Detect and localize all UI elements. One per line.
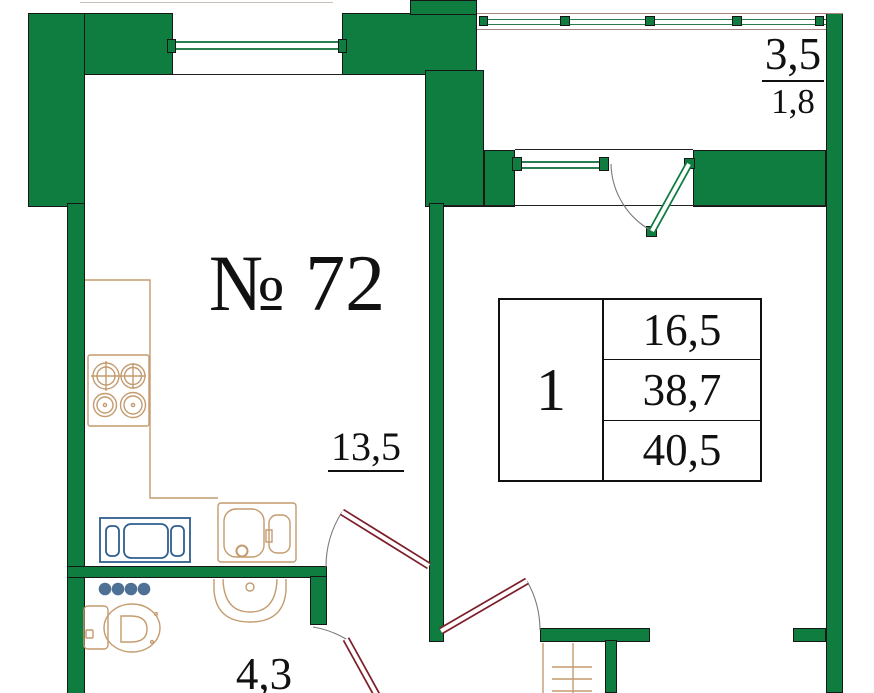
area-balcony: 3,5 bbox=[745, 31, 841, 78]
area-balcony-counted: 1,8 bbox=[745, 84, 841, 121]
floor-plan: № 72 13,5 3,5 1,8 4,3 1 16,5 38,7 40,5 bbox=[0, 0, 874, 693]
kitchen-door bbox=[326, 512, 429, 567]
area-kitchen-living: 13,5 bbox=[320, 426, 412, 468]
bedroom-door bbox=[441, 581, 540, 631]
table-total-area-cell: 38,7 bbox=[604, 360, 760, 420]
area-bathroom: 4,3 bbox=[218, 651, 310, 693]
table-rooms-cell: 1 bbox=[500, 300, 604, 480]
apartment-summary-table: 1 16,5 38,7 40,5 bbox=[498, 298, 762, 482]
kitchen-sink-icon bbox=[218, 503, 296, 562]
stairs-icon bbox=[543, 643, 592, 693]
balcony-door bbox=[611, 164, 689, 231]
table-total-with-balcony-cell: 40,5 bbox=[604, 421, 760, 480]
apartment-number: № 72 bbox=[186, 242, 408, 326]
bathroom-door bbox=[313, 627, 378, 693]
washing-machine-icon bbox=[100, 518, 190, 562]
toilet-icon bbox=[84, 604, 160, 652]
stove-icon bbox=[88, 355, 149, 426]
towel-rail-dots bbox=[99, 583, 151, 596]
washbasin-icon bbox=[214, 579, 286, 622]
table-living-area-cell: 16,5 bbox=[604, 300, 760, 360]
